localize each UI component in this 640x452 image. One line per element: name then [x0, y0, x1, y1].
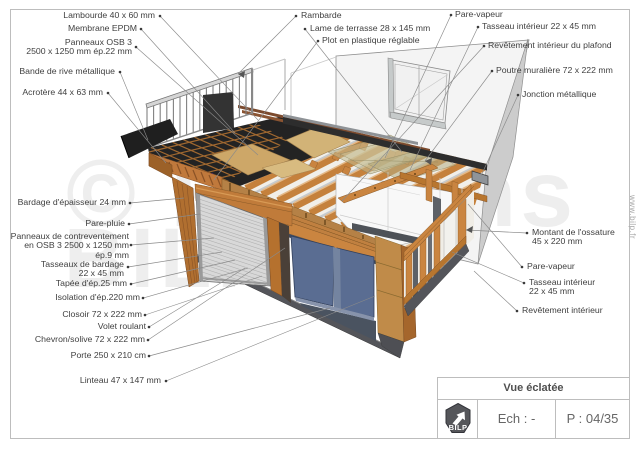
svg-text:BILP: BILP — [449, 423, 468, 432]
